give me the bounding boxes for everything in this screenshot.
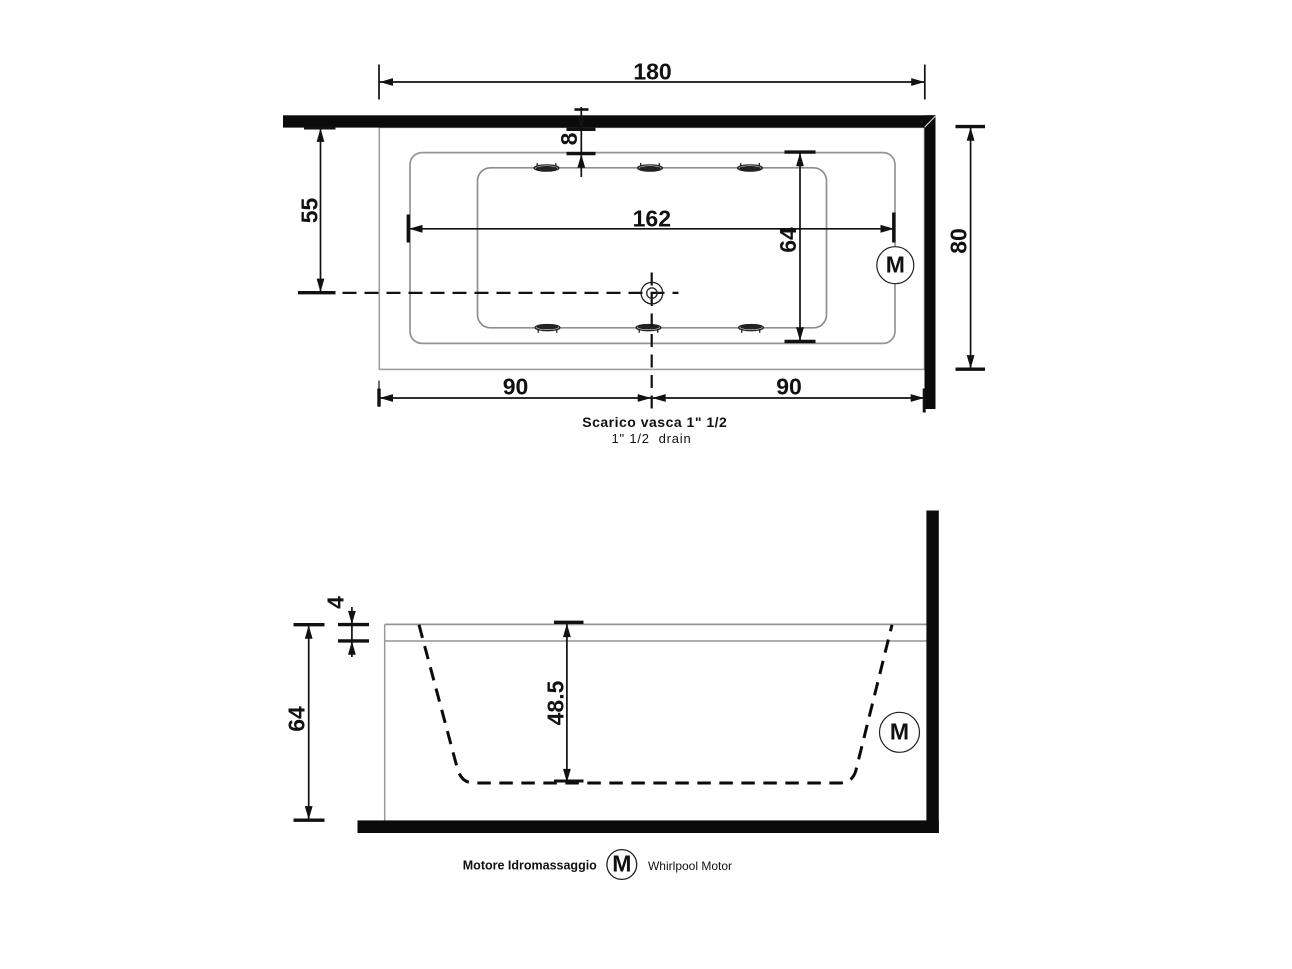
svg-text:90: 90 (503, 373, 529, 399)
svg-text:M: M (890, 719, 909, 745)
svg-text:M: M (612, 851, 631, 877)
svg-text:M: M (886, 251, 905, 277)
svg-text:4: 4 (323, 596, 349, 609)
svg-text:64: 64 (775, 227, 801, 253)
svg-text:8: 8 (556, 132, 582, 145)
svg-text:162: 162 (633, 205, 671, 231)
svg-text:Whirlpool Motor: Whirlpool Motor (648, 859, 732, 873)
svg-text:55: 55 (297, 198, 323, 224)
svg-text:90: 90 (776, 373, 802, 399)
svg-text:1" 1/2 drain: 1" 1/2 drain (611, 431, 691, 446)
svg-text:180: 180 (633, 59, 671, 85)
svg-text:Scarico vasca 1" 1/2: Scarico vasca 1" 1/2 (582, 414, 727, 430)
svg-text:80: 80 (946, 228, 972, 254)
svg-text:48.5: 48.5 (543, 680, 569, 725)
svg-text:64: 64 (284, 706, 310, 732)
svg-text:Motore Idromassaggio: Motore Idromassaggio (463, 859, 597, 873)
